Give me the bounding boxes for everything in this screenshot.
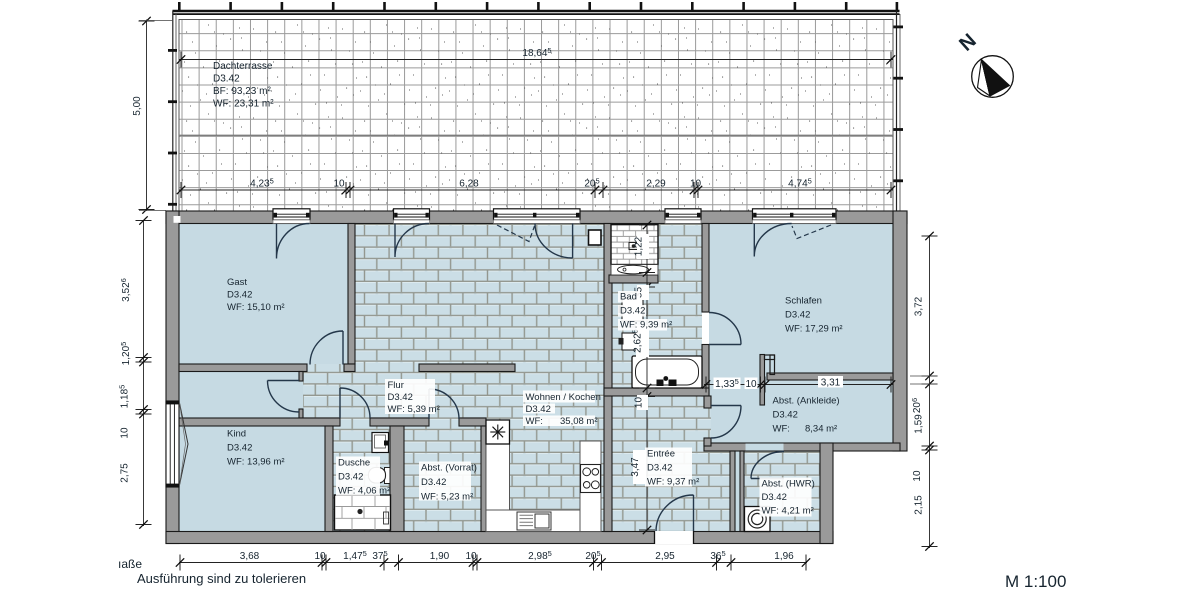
svg-text:10: 10 [690,179,702,190]
svg-text:2,15: 2,15 [914,495,925,515]
svg-text:D3.42: D3.42 [421,477,446,488]
svg-text:WF: 5,39 m²: WF: 5,39 m² [388,404,440,415]
svg-text:Dusche: Dusche [338,458,370,469]
svg-text:3,47: 3,47 [630,457,641,477]
svg-text:1,90: 1,90 [430,551,450,562]
svg-text:WF: 4,21 m²: WF: 4,21 m² [762,506,814,517]
svg-text:Gast: Gast [227,277,247,288]
svg-text:WF: 13,96 m²: WF: 13,96 m² [227,457,285,468]
svg-text:WF: 5,23 m²: WF: 5,23 m² [421,492,473,503]
svg-text:3,31: 3,31 [821,378,841,389]
svg-text:D3.42: D3.42 [213,74,240,85]
svg-text:Dachterrasse: Dachterrasse [213,61,273,72]
svg-text:10: 10 [120,427,131,439]
svg-text:Abst. (Ankleide): Abst. (Ankleide) [773,396,840,407]
svg-text:WF: 17,29 m²: WF: 17,29 m² [785,324,843,335]
svg-text:10: 10 [912,470,923,482]
svg-text:1,96: 1,96 [774,551,794,562]
svg-text:ıaße: ıaße [118,557,142,571]
svg-text:D3.42: D3.42 [773,410,798,421]
svg-text:M 1:100: M 1:100 [1005,572,1066,591]
svg-text:Abst. (Vorrat): Abst. (Vorrat) [421,463,477,474]
svg-text:D3.42: D3.42 [338,472,363,483]
svg-text:WF: 4,06 m²: WF: 4,06 m² [338,486,390,497]
svg-text:10: 10 [465,551,477,562]
svg-text:18,645: 18,645 [522,46,551,59]
svg-text:D3.42: D3.42 [647,463,672,474]
svg-text:3,68: 3,68 [240,551,260,562]
svg-text:Flur: Flur [388,380,404,391]
svg-text:1,59: 1,59 [914,414,925,434]
svg-text:D3.42: D3.42 [526,404,551,415]
svg-text:2,75: 2,75 [120,463,131,483]
svg-text:10: 10 [634,397,645,409]
svg-text:D3.42: D3.42 [620,306,645,317]
svg-text:8,34 m²: 8,34 m² [805,424,837,435]
svg-text:10: 10 [314,551,326,562]
svg-text:WF: 23,31 m²: WF: 23,31 m² [213,99,274,110]
svg-text:3,72: 3,72 [914,296,925,316]
svg-text:Schlafen: Schlafen [785,296,822,307]
svg-text:Entrée: Entrée [647,449,675,460]
svg-text:BF: 93,23 m²: BF: 93,23 m² [213,86,271,97]
svg-text:35,08 m²: 35,08 m² [560,416,598,427]
svg-text:2,95: 2,95 [655,551,675,562]
svg-text:D3.42: D3.42 [762,492,787,503]
svg-text:D3.42: D3.42 [227,443,252,454]
svg-text:D3.42: D3.42 [388,392,413,403]
svg-text:D3.42: D3.42 [785,310,810,321]
svg-text:10: 10 [333,179,345,190]
svg-text:WF:: WF: [773,424,790,435]
svg-text:Ausführung sind zu tolerieren: Ausführung sind zu tolerieren [137,571,306,586]
svg-text:Wohnen / Kochen: Wohnen / Kochen [526,392,601,403]
svg-text:WF:: WF: [526,416,543,427]
svg-text:WF: 15,10 m²: WF: 15,10 m² [227,302,285,313]
svg-text:Kind: Kind [227,429,246,440]
svg-text:6,28: 6,28 [459,179,479,190]
svg-text:WF: 9,39 m²: WF: 9,39 m² [620,320,672,331]
svg-text:D3.42: D3.42 [227,290,252,301]
svg-text:5,00: 5,00 [132,96,143,116]
svg-text:WF: 9,37 m²: WF: 9,37 m² [647,477,699,488]
svg-text:1,22: 1,22 [634,236,645,256]
svg-text:Bad: Bad [620,292,637,303]
svg-text:2,29: 2,29 [646,179,666,190]
svg-text:10: 10 [745,379,757,390]
svg-text:Abst. (HWR): Abst. (HWR) [762,479,815,490]
